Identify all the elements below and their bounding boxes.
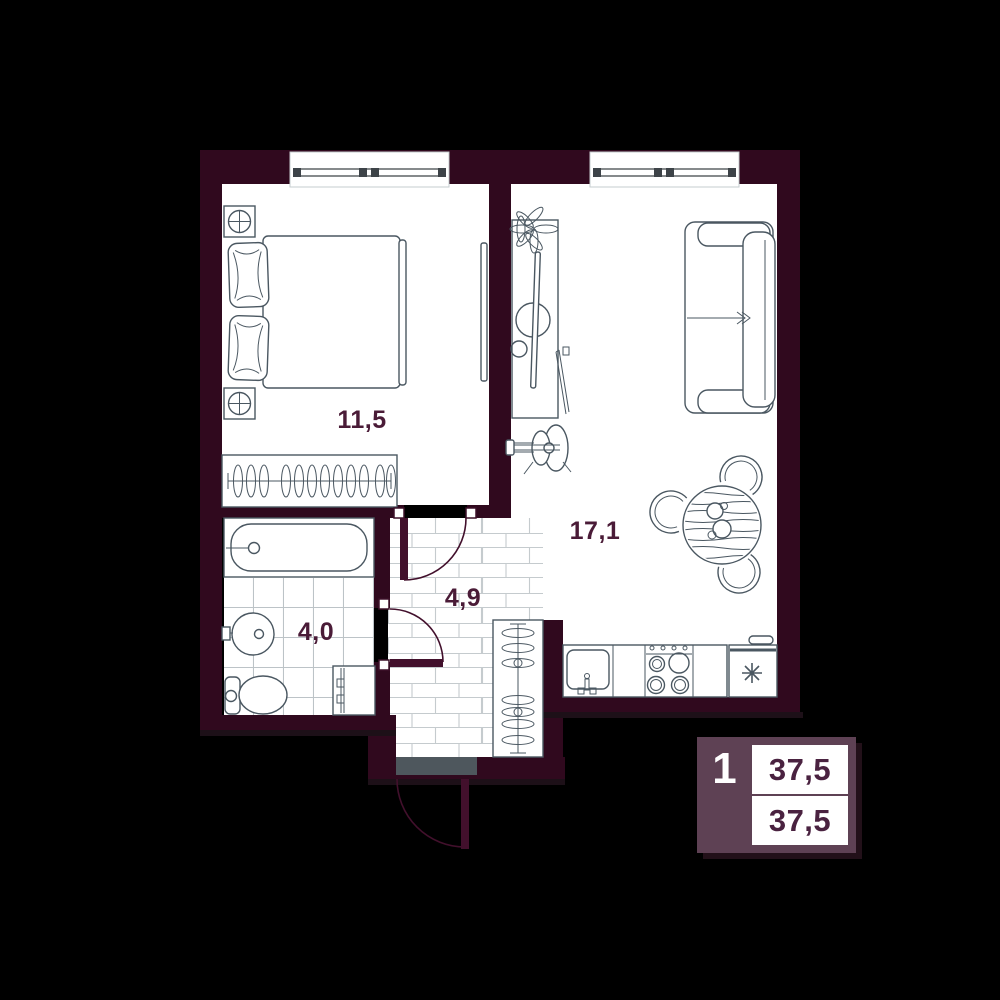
living-area-value: 37,5 [752, 796, 848, 845]
toilet [225, 676, 287, 714]
hallway-area-label: 4,9 [445, 584, 481, 612]
sofa [685, 222, 775, 413]
pillow [228, 315, 269, 380]
entrance-door [397, 779, 469, 849]
pillow [228, 242, 269, 307]
kitchen [563, 636, 777, 697]
bathtub [224, 518, 374, 577]
living-window [590, 152, 739, 187]
tv-console [511, 220, 558, 418]
fridge [729, 636, 777, 697]
snowflake-icon [742, 663, 762, 683]
apartment-info-badge: 1 37,5 37,5 [697, 737, 856, 853]
rooms-count: 1 [697, 737, 752, 853]
floor-plan-page: 11,5 17,1 4,9 4,0 1 37,5 37,5 [0, 0, 1000, 1000]
bedroom-window [290, 152, 449, 187]
nightstand-lamp-top [224, 206, 255, 237]
bathroom-area-label: 4,0 [298, 618, 334, 646]
washing-machine [333, 666, 375, 715]
wall-tv-bedroom [481, 243, 487, 381]
living-area-label: 17,1 [570, 517, 621, 545]
total-area-value: 37,5 [752, 745, 848, 794]
bedroom-wardrobe-hangers [222, 455, 397, 507]
hall-wardrobe-hangers [493, 620, 543, 757]
bedroom-area-label: 11,5 [337, 406, 386, 434]
nightstand-lamp-bottom [224, 388, 255, 419]
entrance-threshold [396, 757, 477, 779]
